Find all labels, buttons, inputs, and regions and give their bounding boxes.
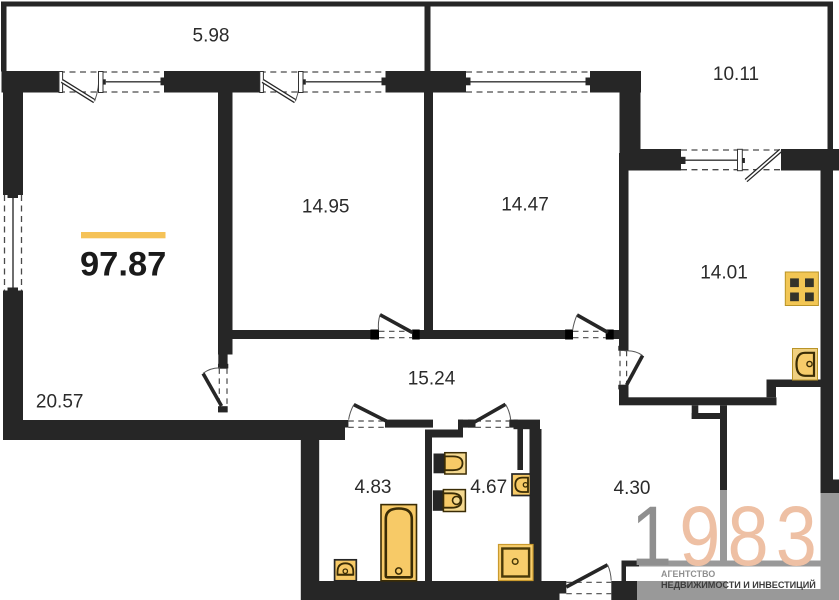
svg-text:97.87: 97.87 [80, 246, 166, 284]
svg-text:АГЕНТСТВО: АГЕНТСТВО [661, 569, 715, 579]
svg-text:14.01: 14.01 [700, 263, 748, 284]
svg-text:4.67: 4.67 [470, 477, 507, 498]
svg-text:4.83: 4.83 [355, 477, 392, 498]
svg-text:НЕДВИЖИМОСТИ И ИНВЕСТИЦИЙ: НЕДВИЖИМОСТИ И ИНВЕСТИЦИЙ [661, 579, 816, 590]
svg-text:20.57: 20.57 [36, 392, 84, 413]
svg-text:10.11: 10.11 [713, 64, 759, 85]
svg-text:14.95: 14.95 [302, 197, 350, 218]
svg-text:5.98: 5.98 [193, 26, 230, 47]
svg-text:15.24: 15.24 [408, 369, 456, 390]
svg-text:14.47: 14.47 [501, 195, 549, 216]
svg-text:1983: 1983 [631, 489, 824, 583]
